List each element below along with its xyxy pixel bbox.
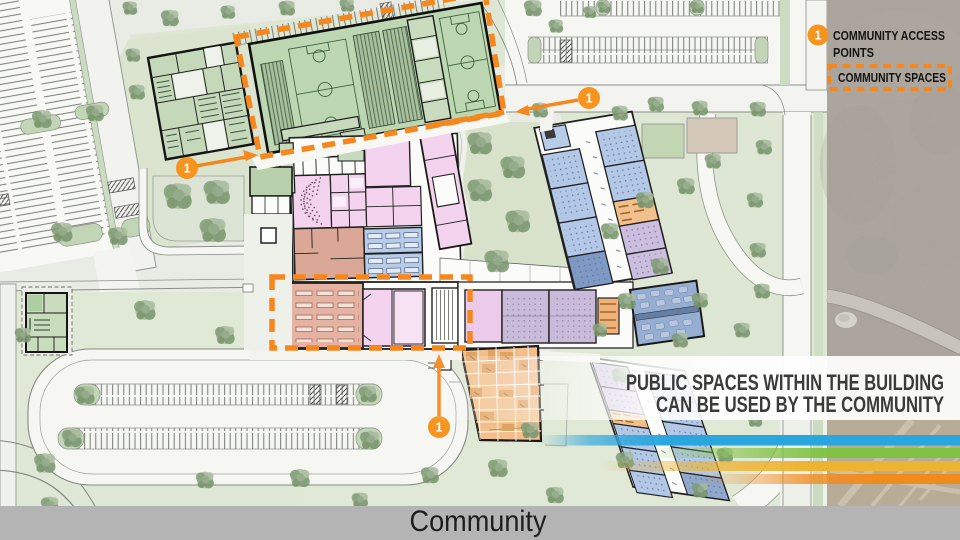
- svg-text:1: 1: [585, 91, 592, 106]
- svg-text:1: 1: [183, 161, 190, 176]
- svg-text:1: 1: [815, 29, 822, 43]
- svg-text:Community: Community: [410, 505, 547, 538]
- svg-text:COMMUNITY SPACES: COMMUNITY SPACES: [838, 71, 946, 85]
- svg-text:1: 1: [435, 420, 442, 435]
- svg-text:CAN BE USED BY THE COMMUNITY: CAN BE USED BY THE COMMUNITY: [656, 392, 944, 417]
- svg-text:COMMUNITY ACCESS: COMMUNITY ACCESS: [833, 29, 945, 43]
- svg-text:POINTS: POINTS: [833, 46, 874, 60]
